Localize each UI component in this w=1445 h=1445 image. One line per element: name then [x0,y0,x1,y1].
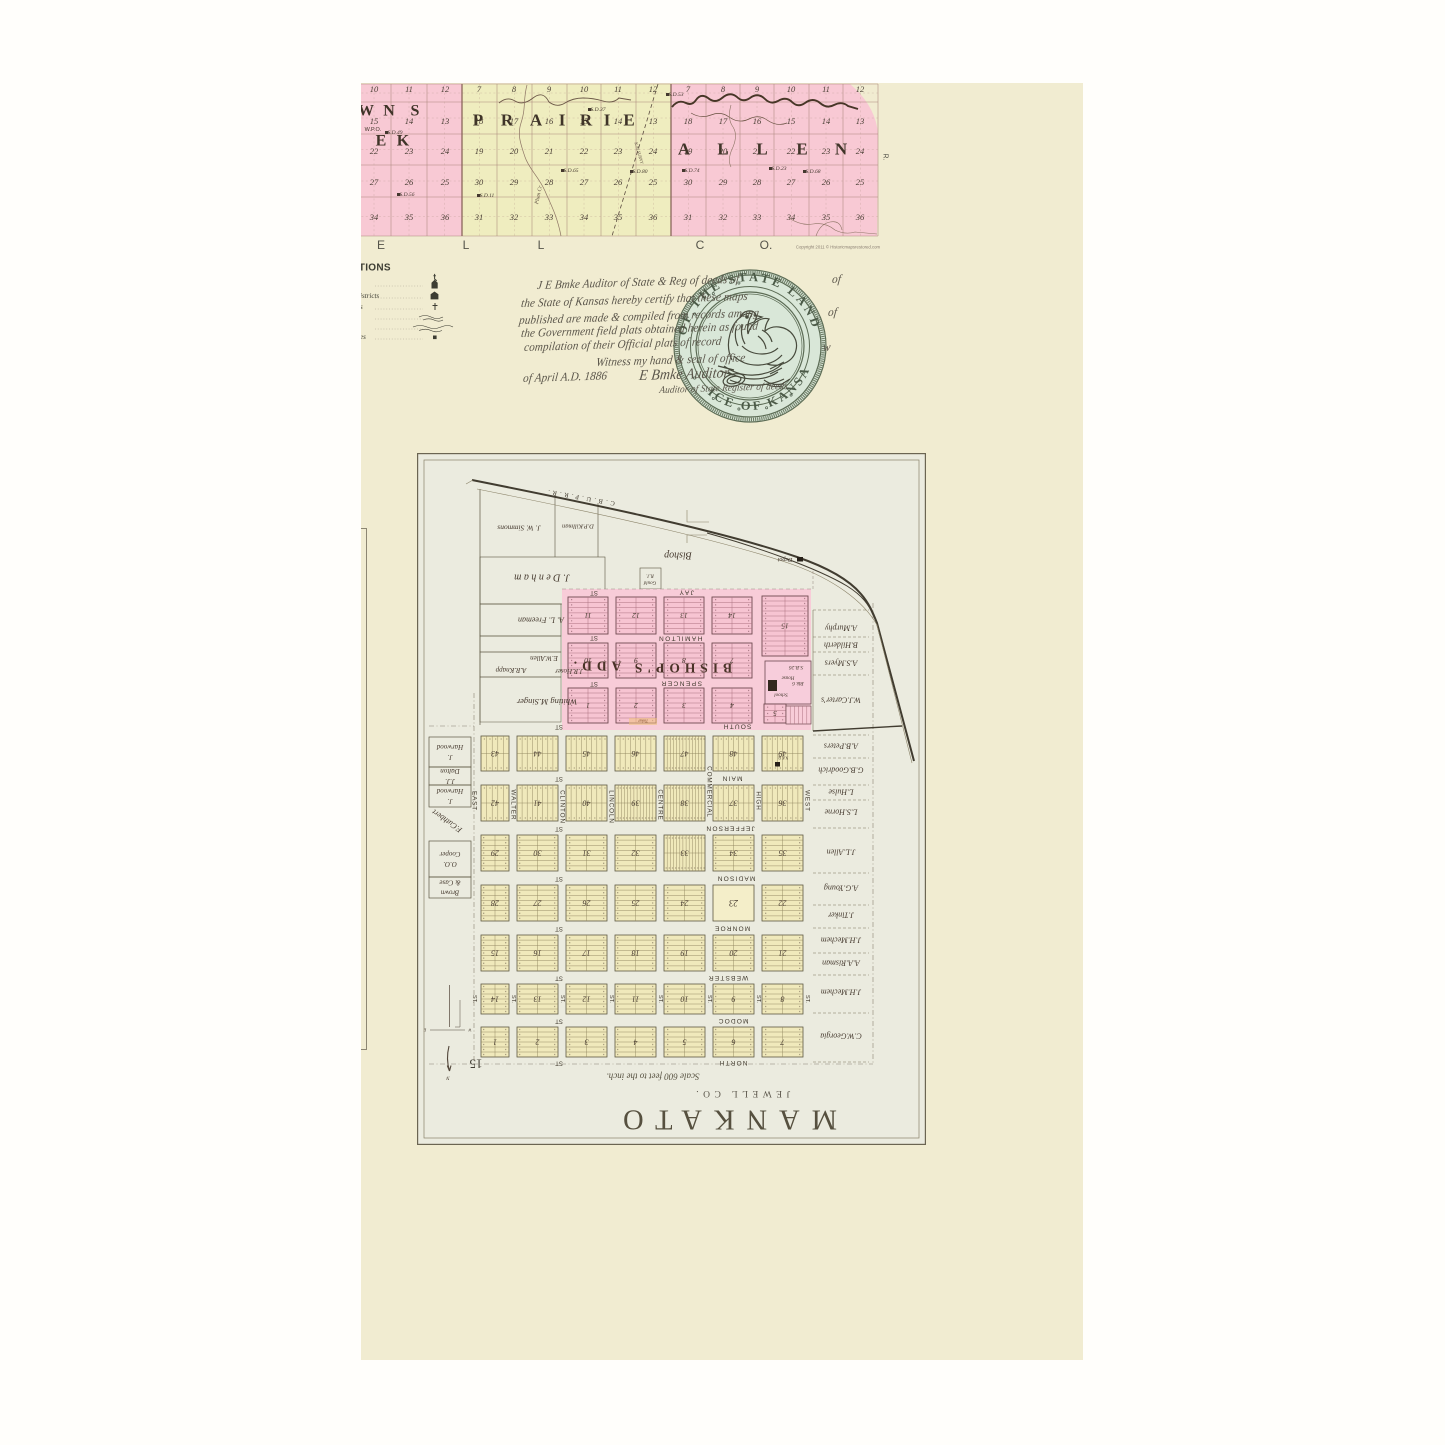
svg-text:J.Tinker: J.Tinker [827,911,854,920]
svg-text:12: 12 [632,611,640,620]
svg-text:24: 24 [856,146,865,156]
svg-text:13: 13 [856,116,865,126]
svg-text:S.D.37: S.D.37 [591,107,606,113]
svg-text:34: 34 [369,212,379,222]
svg-text:CENTRE: CENTRE [657,789,664,820]
svg-text:CLINTON: CLINTON [559,790,566,824]
svg-text:Harwood: Harwood [436,743,464,751]
svg-text:J.R.Hoser: J.R.Hoser [555,667,583,675]
svg-text:6: 6 [732,1038,736,1047]
svg-text:26: 26 [614,177,623,187]
svg-text:J. W. Simmons: J. W. Simmons [497,524,541,533]
svg-text:27: 27 [370,177,379,187]
svg-text:18: 18 [684,116,693,126]
svg-text:31: 31 [583,849,592,858]
svg-text:22: 22 [580,146,589,156]
svg-text:O.: O. [760,238,773,252]
svg-text:ST.: ST. [804,995,810,1003]
svg-text:1: 1 [586,701,590,710]
svg-text:R: R [580,111,593,130]
svg-text:38: 38 [681,799,690,808]
svg-text:29: 29 [510,177,519,187]
svg-text:ST: ST [555,825,563,831]
svg-text:30: 30 [683,177,693,187]
svg-text:20: 20 [730,949,738,958]
svg-text:ST.: ST. [755,995,761,1003]
svg-text:S.B.26: S.B.26 [789,664,804,670]
svg-text:5: 5 [773,709,777,718]
svg-text:10: 10 [370,84,379,94]
svg-text:ST: ST [590,634,598,640]
svg-text:House: House [781,675,796,680]
svg-text:JEWELL CO.: JEWELL CO. [692,1088,790,1098]
svg-text:Dalton: Dalton [440,767,461,775]
svg-text:ST: ST [555,1018,563,1024]
svg-text:L.S.Horne: L.S.Horne [824,808,858,817]
svg-text:29: 29 [719,177,728,187]
svg-text:N: N [446,1075,451,1080]
svg-text:L.Hulse: L.Hulse [828,788,855,797]
svg-text:A: A [530,111,543,130]
svg-text:ST: ST [555,975,563,981]
svg-text:27: 27 [787,177,796,187]
svg-text:S.D.53: S.D.53 [669,92,684,98]
svg-text:O.O.: O.O. [443,860,457,868]
svg-text:13: 13 [649,116,658,126]
svg-text:E: E [377,238,385,252]
svg-text:Gould: Gould [643,580,656,585]
svg-text:16: 16 [545,116,554,126]
svg-text:31: 31 [474,212,484,222]
svg-text:16: 16 [534,949,542,958]
svg-text:MANKATO: MANKATO [611,1104,837,1135]
svg-text:1: 1 [493,1038,497,1047]
svg-text:N.K.B.: N.K.B. [778,756,790,761]
svg-text:J.L.Allen: J.L.Allen [827,848,856,857]
svg-text:E: E [423,1028,427,1033]
svg-text:I: I [604,111,611,130]
svg-text:LINCOLN: LINCOLN [608,790,615,824]
svg-text:12: 12 [649,84,658,94]
svg-text:2: 2 [634,701,638,710]
svg-text:A.R.Knapp: A.R.Knapp [495,666,527,674]
svg-text:14: 14 [728,611,736,620]
svg-text:3: 3 [585,1038,590,1047]
svg-text:11: 11 [632,995,639,1004]
svg-text:G.B.Goodrich: G.B.Goodrich [818,766,863,775]
svg-text:Whiting M.Singer: Whiting M.Singer [516,697,577,707]
svg-text:MONROE: MONROE [714,925,750,932]
svg-text:35: 35 [404,212,414,222]
svg-text:41: 41 [534,799,542,808]
svg-text:20: 20 [510,146,519,156]
svg-text:13: 13 [534,995,542,1004]
svg-text:30: 30 [474,177,484,187]
svg-text:28: 28 [491,899,499,908]
svg-text:A. L. Freeman: A. L. Freeman [518,616,565,625]
svg-text:R.: R. [882,154,889,161]
svg-text:A.S.Myers: A.S.Myers [825,659,859,668]
svg-text:HAMILTON: HAMILTON [658,635,703,642]
svg-text:A: A [678,140,691,159]
svg-text:11: 11 [405,84,413,94]
svg-text:SPENCER: SPENCER [660,680,702,687]
svg-text:10: 10 [580,84,589,94]
svg-text:A.G.Young: A.G.Young [824,884,859,893]
svg-text:L: L [463,238,470,252]
svg-text:34: 34 [730,849,739,858]
svg-text:31: 31 [683,212,693,222]
svg-text:37: 37 [729,799,739,808]
svg-text:W.J.Carter's: W.J.Carter's [821,696,861,705]
svg-text:D.P.Killman: D.P.Killman [562,523,595,530]
svg-text:ices: ices [361,333,366,341]
svg-text:23: 23 [729,898,739,908]
svg-text:35: 35 [613,212,623,222]
svg-text:14: 14 [822,116,831,126]
svg-text:S: S [411,103,420,120]
svg-text:MODOC: MODOC [718,1017,749,1024]
svg-text:24: 24 [681,899,689,908]
svg-text:15: 15 [470,1057,483,1072]
svg-text:& Case: & Case [439,879,460,887]
svg-text:48: 48 [730,749,738,758]
svg-text:E.W.Allen: E.W.Allen [530,654,559,662]
svg-text:25: 25 [441,177,450,187]
svg-text:47: 47 [680,749,689,758]
svg-text:3: 3 [682,701,687,710]
svg-text:13: 13 [441,116,450,126]
svg-text:15: 15 [787,116,796,126]
svg-text:ST.: ST. [706,995,712,1003]
svg-text:46: 46 [632,749,640,758]
svg-text:11: 11 [822,84,830,94]
svg-text:ST.: ST. [657,995,663,1003]
svg-text:10: 10 [681,995,689,1004]
svg-text:E: E [376,133,387,150]
svg-text:11: 11 [614,84,622,94]
svg-text:4: 4 [634,1038,638,1047]
svg-text:J.: J. [447,753,452,761]
svg-text:ATIONS: ATIONS [361,263,391,274]
svg-text:24: 24 [441,146,450,156]
svg-text:34: 34 [786,212,796,222]
svg-text:JAY: JAY [678,589,694,596]
svg-text:N: N [383,103,395,120]
svg-text:Tinker: Tinker [637,719,648,724]
svg-text:BISHOP'S: BISHOP'S [630,661,732,676]
svg-text:P: P [473,111,483,130]
svg-text:C.W.Georgia: C.W.Georgia [820,1032,862,1041]
svg-text:School: School [774,692,788,697]
svg-text:B.Hilderth: B.Hilderth [824,641,858,650]
svg-text:Cooper: Cooper [439,850,460,858]
svg-text:MADISON: MADISON [717,875,756,882]
svg-text:Copyright 2011 © Historicmapsr: Copyright 2011 © Historicmapsrestored.co… [796,245,881,250]
svg-text:15: 15 [491,949,499,958]
svg-text:12: 12 [583,995,591,1004]
svg-text:J. D e n h a m: J. D e n h a m [514,572,570,583]
svg-text:S.D.49: S.D.49 [388,129,403,136]
svg-text:ST.: ST. [608,995,614,1003]
svg-text:A.B.Peters: A.B.Peters [824,742,859,751]
svg-text:23: 23 [822,146,831,156]
svg-text:L: L [717,140,728,159]
svg-text:SOUTH: SOUTH [723,723,752,730]
svg-text:ST.: ST. [510,995,516,1003]
svg-text:Depot: Depot [777,556,793,562]
svg-text:25: 25 [856,177,865,187]
svg-text:45: 45 [583,749,591,758]
svg-text:16: 16 [753,116,762,126]
svg-text:WALTER: WALTER [510,790,517,821]
svg-text:J.: J. [447,797,452,805]
svg-text:L: L [756,140,767,159]
svg-text:26: 26 [405,177,414,187]
svg-text:S.D.74: S.D.74 [685,167,700,174]
svg-text:E: E [623,111,634,130]
svg-text:ST: ST [555,723,563,729]
svg-text:JEFFERSON: JEFFERSON [705,825,754,832]
svg-text:25: 25 [649,177,658,187]
svg-text:30: 30 [534,849,543,858]
svg-text:ST: ST [590,680,598,686]
svg-text:22: 22 [787,146,796,156]
svg-text:Bishop: Bishop [664,550,692,561]
svg-text:S.D.80: S.D.80 [633,169,648,175]
svg-text:13: 13 [680,611,688,620]
svg-text:12: 12 [856,84,865,94]
svg-text:2: 2 [536,1038,540,1047]
svg-text:J.J.: J.J. [445,777,455,785]
svg-text:A.Murphy: A.Murphy [824,624,858,633]
svg-text:27: 27 [533,899,542,908]
svg-text:MAIN: MAIN [721,775,742,782]
svg-text:33: 33 [681,849,690,858]
svg-text:Brown: Brown [440,889,459,897]
svg-text:Scale 600 feet to the inch.: Scale 600 feet to the inch. [607,1072,700,1082]
svg-text:36: 36 [440,212,450,222]
svg-text:S.D.56: S.D.56 [400,192,415,198]
svg-text:28: 28 [545,177,554,187]
svg-text:40: 40 [583,799,591,808]
svg-text:ST: ST [555,1060,563,1066]
svg-text:17: 17 [582,949,591,958]
svg-text:23: 23 [614,146,623,156]
svg-text:32: 32 [509,212,519,222]
svg-text:L: L [538,238,545,252]
svg-text:26: 26 [583,899,591,908]
svg-text:32: 32 [632,849,641,858]
svg-text:36: 36 [855,212,865,222]
svg-text:18: 18 [632,949,640,958]
svg-text:ST: ST [555,875,563,881]
svg-text:17: 17 [719,116,728,126]
svg-text:W.P.O.: W.P.O. [365,127,382,133]
svg-text:J.H.Mechem: J.H.Mechem [821,988,862,997]
svg-text:S.D.23: S.D.23 [772,166,787,172]
svg-text:I: I [559,111,566,130]
svg-text:WEBSTER: WEBSTER [708,974,749,981]
svg-text:25: 25 [632,899,640,908]
svg-text:ST: ST [590,589,598,595]
svg-text:43: 43 [491,749,499,758]
svg-text:9: 9 [732,995,736,1004]
svg-text:36: 36 [648,212,658,222]
svg-text:11: 11 [585,611,592,620]
svg-text:36: 36 [779,799,788,808]
svg-text:39: 39 [632,799,641,808]
svg-text:Districts: Districts [361,292,379,300]
svg-text:5: 5 [683,1038,687,1047]
svg-text:14: 14 [614,116,623,126]
svg-text:10: 10 [787,84,796,94]
svg-text:ST.: ST. [559,995,565,1003]
svg-text:A.A.Risman: A.A.Risman [822,959,861,968]
svg-text:ST: ST [555,775,563,781]
svg-text:8: 8 [781,995,785,1004]
svg-text:W: W [361,103,374,120]
svg-text:HIGH: HIGH [755,791,762,810]
svg-text:C: C [696,238,705,252]
svg-text:29: 29 [491,849,499,858]
svg-text:Blk 6: Blk 6 [792,680,804,686]
svg-text:WEST: WEST [804,790,811,812]
svg-text:15: 15 [781,622,789,631]
svg-text:33: 33 [544,212,554,222]
svg-text:33: 33 [752,212,762,222]
svg-text:19: 19 [475,146,484,156]
svg-text:12: 12 [441,84,450,94]
svg-text:44: 44 [534,749,542,758]
svg-text:28: 28 [753,177,762,187]
svg-text:Harwood: Harwood [436,787,464,795]
svg-text:32: 32 [718,212,728,222]
svg-text:NORTH: NORTH [719,1059,748,1066]
svg-text:4: 4 [730,701,734,710]
svg-text:21: 21 [545,146,554,156]
svg-text:26: 26 [822,177,831,187]
svg-text:27: 27 [580,177,589,187]
svg-text:ies: ies [361,303,363,311]
svg-text:35: 35 [821,212,831,222]
svg-text:R: R [501,111,514,130]
svg-text:24: 24 [649,146,658,156]
svg-text:34: 34 [579,212,589,222]
svg-text:R.J.: R.J. [646,573,655,578]
svg-text:22: 22 [779,899,787,908]
svg-text:21: 21 [779,949,787,958]
svg-text:S.D.11: S.D.11 [480,193,495,199]
svg-text:S.D.68: S.D.68 [806,169,821,175]
svg-text:14: 14 [491,995,499,1004]
svg-text:J.H.Mechem: J.H.Mechem [821,936,862,945]
svg-text:N: N [835,140,848,159]
svg-text:35: 35 [779,849,788,858]
svg-text:ST: ST [555,925,563,931]
svg-text:19: 19 [681,949,689,958]
svg-text:42: 42 [491,799,499,808]
svg-text:COMMERCIAL: COMMERCIAL [706,766,713,818]
svg-text:S.D.65: S.D.65 [564,168,579,174]
svg-text:E: E [796,140,807,159]
